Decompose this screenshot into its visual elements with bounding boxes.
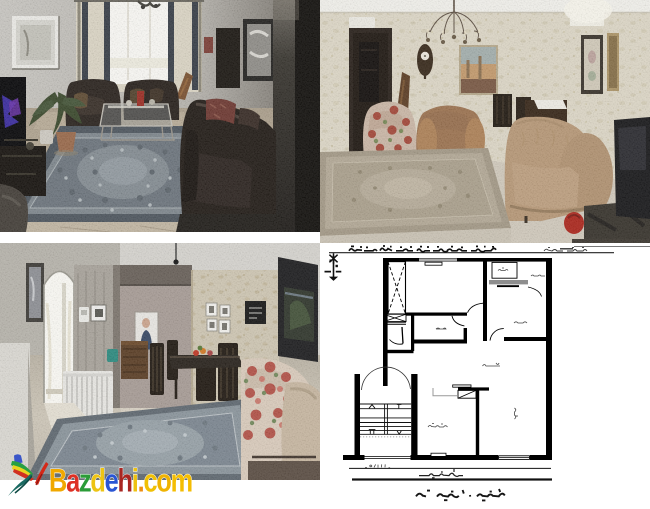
svg-text:Bazdehi.com: Bazdehi.com <box>49 464 192 500</box>
